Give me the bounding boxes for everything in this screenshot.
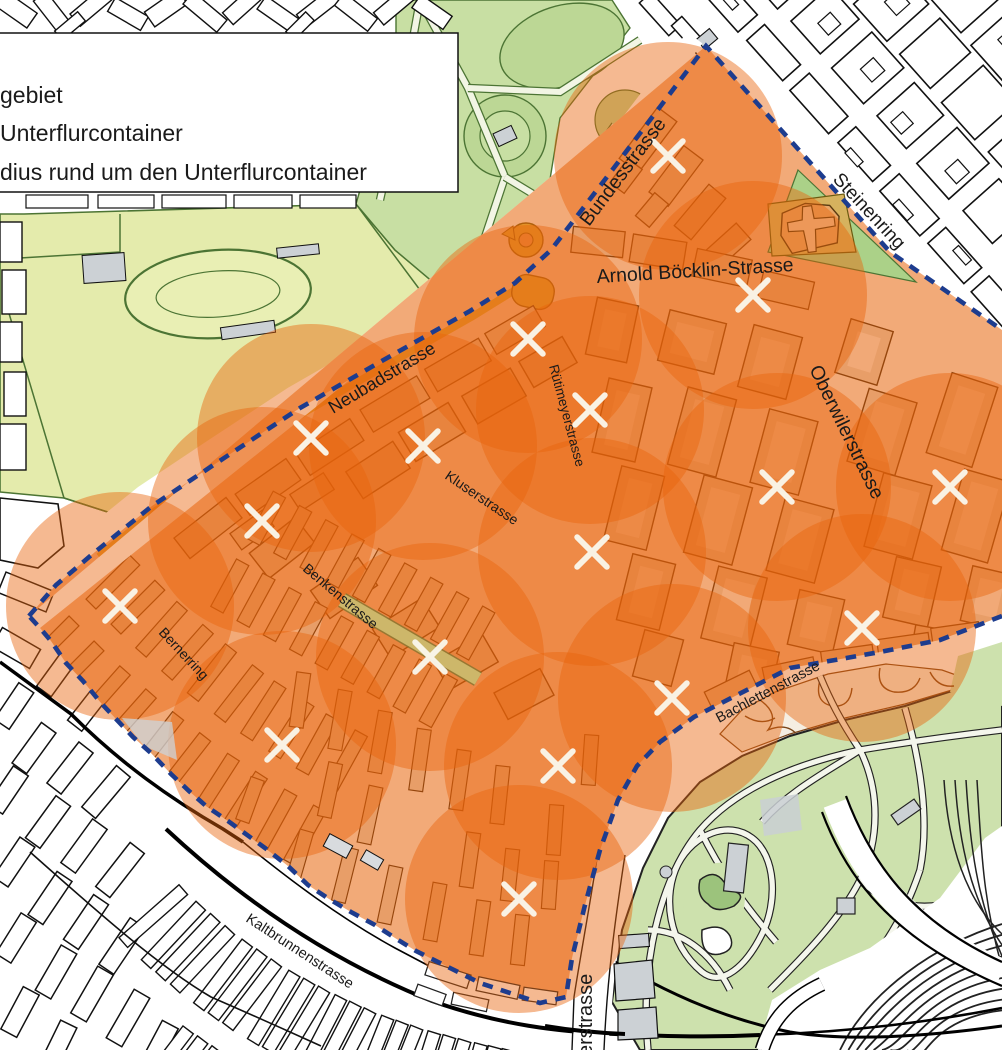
svg-text:Unterflurcontainer: Unterflurcontainer (0, 120, 183, 146)
svg-text:gebiet: gebiet (0, 82, 63, 108)
svg-text:erstrasse: erstrasse (575, 974, 597, 1050)
svg-text:dius rund um den Unterflurcont: dius rund um den Unterflurcontainer (0, 159, 367, 185)
